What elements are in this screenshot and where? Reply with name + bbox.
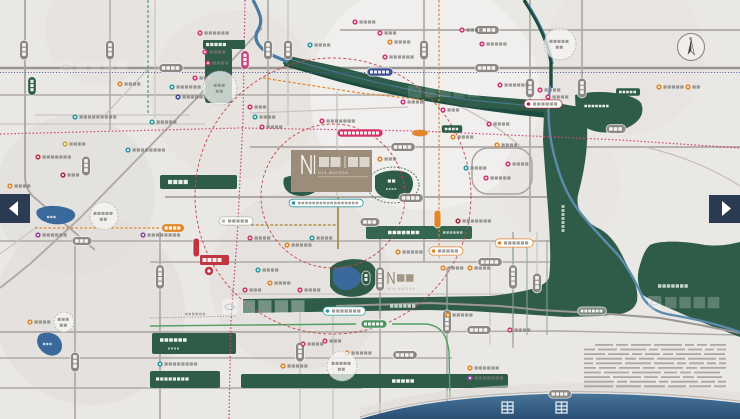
svg-text:N18 MAISON: N18 MAISON bbox=[388, 287, 415, 291]
svg-text:N18 MAISON: N18 MAISON bbox=[318, 171, 349, 175]
